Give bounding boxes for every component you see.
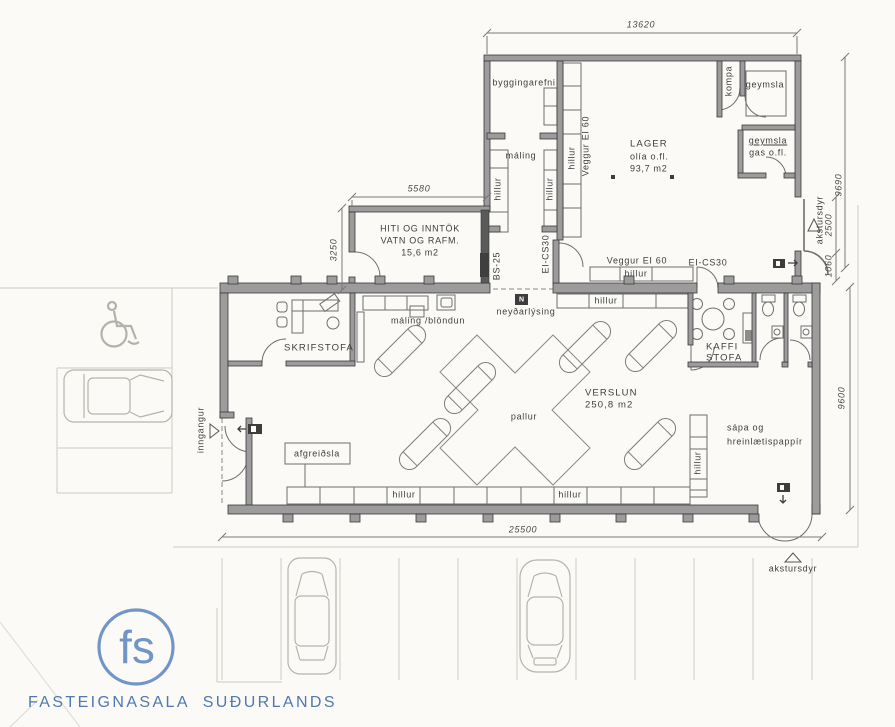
floor-plan-page: 13620 9690 5580 3250 2500 1060 25500 960… xyxy=(0,0,895,727)
sapa-label-2: hreinlætispappír xyxy=(727,438,803,447)
hillur-label-8: hillur xyxy=(558,491,581,500)
sapa-label-1: sápa og xyxy=(727,424,764,433)
room-label-lager: LAGER xyxy=(630,139,668,149)
room-label-hiti-2: VATN OG RAFM. xyxy=(381,237,460,246)
room-label-kaffi-1: KAFFI xyxy=(706,342,738,352)
bs25-damper xyxy=(480,253,489,277)
office-furniture xyxy=(277,294,340,333)
dim-shop-height: 9600 xyxy=(838,387,847,410)
exit-icon-lager xyxy=(773,259,797,268)
inngangur-label: inngangur xyxy=(197,407,206,453)
car-parking-2 xyxy=(520,560,570,672)
room-label-hiti-area: 15,6 m2 xyxy=(401,249,438,258)
room-label-maling: máling xyxy=(506,152,537,161)
maling-blondun-label: máling /blöndun xyxy=(391,317,465,326)
room-label-geymsla: geymsla xyxy=(746,81,784,90)
akstursdyr-label-right: akstursdyr xyxy=(816,196,825,245)
exit-icon-shop xyxy=(777,483,790,503)
room-label-lager-contents: olía o.fl. xyxy=(630,153,669,162)
exit-icon-entrance xyxy=(238,424,262,434)
dashed-lines xyxy=(222,289,553,505)
neydarlysing-n: N xyxy=(519,296,524,303)
kaffistofa-table xyxy=(692,299,735,340)
car-parking-1 xyxy=(288,558,336,674)
dim-shop-width: 25500 xyxy=(509,526,538,535)
shelf-byggingarefni xyxy=(544,88,557,125)
neydarlysing-label: neyðarlýsing xyxy=(497,308,556,317)
geymsla-inner xyxy=(746,71,786,116)
bs25-label: BS-25 xyxy=(493,252,502,281)
parking-stall-lines xyxy=(222,558,812,680)
room-label-kompa: kompa xyxy=(725,66,734,97)
dim-hiti-width: 5580 xyxy=(408,185,431,194)
counter-maling-blondun xyxy=(363,295,455,317)
room-label-geymsla-gas: geymsla xyxy=(749,137,787,146)
room-label-lager-area: 93,7 m2 xyxy=(630,165,667,174)
hillur-label-4: hillur xyxy=(624,270,647,279)
hillur-label-6: hillur xyxy=(694,451,703,474)
hillur-label-3: hillur xyxy=(568,146,577,169)
afgreidsla-label: afgreiðsla xyxy=(294,450,340,459)
room-label-kaffi-2: STOFA xyxy=(706,353,742,363)
dim-top-width: 13620 xyxy=(627,21,656,30)
hillur-label-5: hillur xyxy=(594,297,617,306)
hillur-label-1: hillur xyxy=(494,177,503,200)
hillur-label-7: hillur xyxy=(392,491,415,500)
lager-columns xyxy=(611,175,674,179)
ei-cs30-horizontal: EI-CS30 xyxy=(689,259,728,268)
logo-fs-monogram: fs xyxy=(119,620,155,674)
room-label-verslun: VERSLUN xyxy=(585,388,638,398)
room-label-geymsla-gas-contents: gas o.fl. xyxy=(749,149,787,158)
dim-hiti-height: 3250 xyxy=(330,239,339,262)
dim-door-offset: 1060 xyxy=(825,255,834,278)
hillur-label-2: hillur xyxy=(546,177,555,200)
floor-plan-svg xyxy=(0,0,895,727)
room-label-verslun-area: 250,8 m2 xyxy=(585,400,633,410)
room-label-skrifstofa: SKRIFSTOFA xyxy=(284,343,354,353)
ei-cs30-vertical: EI-CS30 xyxy=(542,235,551,274)
wheelchair-icon xyxy=(102,302,140,347)
car-left-side xyxy=(64,370,172,422)
akstursdyr-label-bottom: akstursdyr xyxy=(769,565,818,574)
shelf-below-veggur xyxy=(557,294,688,308)
akstursdyr-bottom-arrow xyxy=(785,553,801,562)
veggur-ei60-vertical: Veggur EI 60 xyxy=(582,116,591,176)
pallur-label: pallur xyxy=(511,413,537,422)
shelf-bottom-row xyxy=(287,487,690,504)
office-side-strip xyxy=(357,312,364,362)
room-label-hiti-1: HITI OG INNTÖK xyxy=(380,225,460,234)
veggur-ei60-horizontal: Veggur EI 60 xyxy=(607,257,667,266)
room-label-byggingarefni: byggingarefni xyxy=(492,79,555,88)
exit-icons xyxy=(238,259,797,503)
inngangur-arrow xyxy=(210,424,219,438)
dim-lager-height: 9690 xyxy=(835,174,844,197)
dim-door-width: 2500 xyxy=(825,214,834,237)
company-name: FASTEIGNASALA SUÐURLANDS xyxy=(28,694,337,712)
